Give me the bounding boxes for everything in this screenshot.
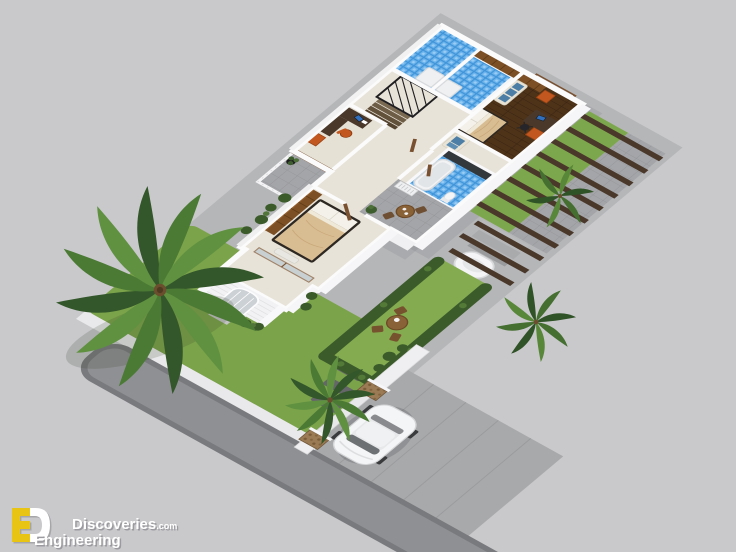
garden-chair (371, 325, 383, 333)
watermark-line2: Engineering (34, 532, 121, 549)
render-canvas: Discoveries.com Discoveries.com Engineer… (0, 0, 736, 552)
logo-letter-e (12, 508, 32, 542)
floor-plan-render: Discoveries.com Discoveries.com Engineer… (0, 0, 736, 552)
